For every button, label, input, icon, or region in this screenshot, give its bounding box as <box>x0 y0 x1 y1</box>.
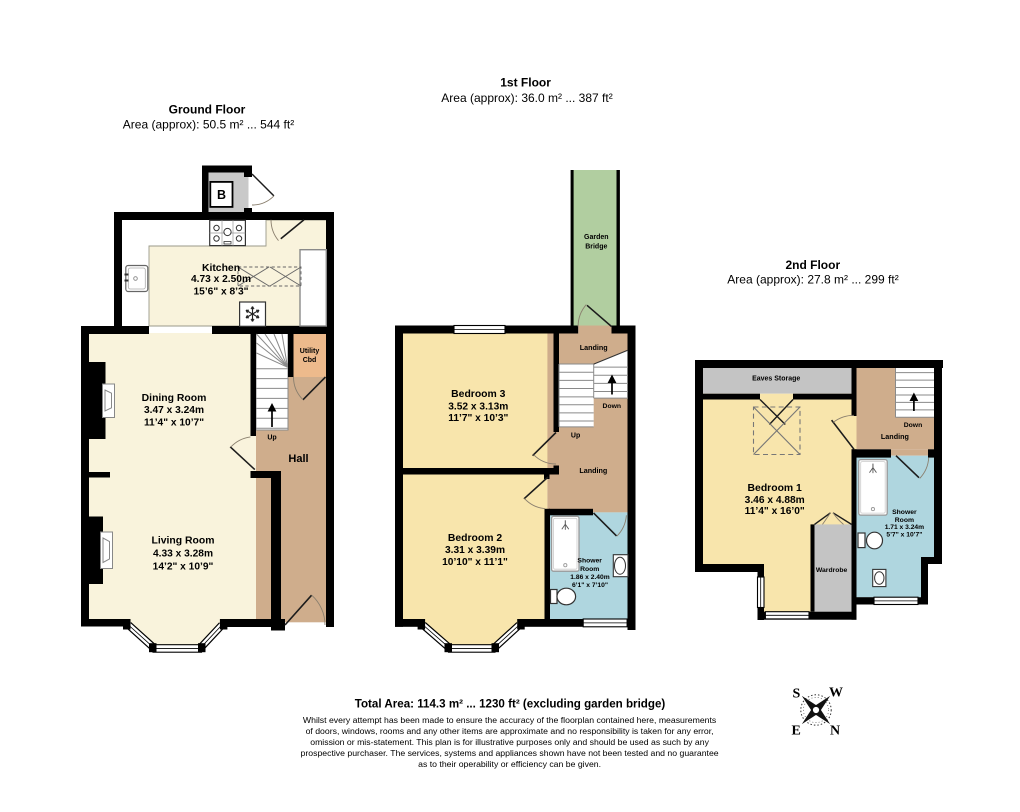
svg-text:Ground Floor: Ground Floor <box>169 103 246 117</box>
svg-text:6’1" x 7’10": 6’1" x 7’10" <box>572 582 608 589</box>
svg-text:15’6" x 8’3": 15’6" x 8’3" <box>194 287 249 298</box>
svg-text:2nd Floor: 2nd Floor <box>785 258 840 272</box>
svg-text:Garden: Garden <box>584 234 609 241</box>
svg-text:Down: Down <box>904 422 923 429</box>
svg-text:1.86 x 2.40m: 1.86 x 2.40m <box>570 574 609 581</box>
svg-text:Cbd: Cbd <box>303 357 317 364</box>
svg-text:Bedroom 3: Bedroom 3 <box>451 389 505 400</box>
svg-text:of doors, windows, rooms and a: of doors, windows, rooms and any other i… <box>306 726 714 736</box>
svg-text:Area (approx): 36.0 m² ... 387: Area (approx): 36.0 m² ... 387 ft² <box>441 91 612 105</box>
svg-text:4.73 x 2.50m: 4.73 x 2.50m <box>191 274 251 285</box>
svg-text:Room: Room <box>895 517 914 524</box>
svg-text:Hall: Hall <box>288 453 308 465</box>
svg-text:Up: Up <box>267 434 276 441</box>
svg-text:Kitchen: Kitchen <box>202 263 240 274</box>
svg-text:S: S <box>793 686 801 701</box>
svg-text:1st Floor: 1st Floor <box>500 76 551 90</box>
svg-text:Bridge: Bridge <box>585 244 607 251</box>
svg-text:14’2" x 10’9": 14’2" x 10’9" <box>153 562 214 573</box>
svg-text:W: W <box>829 686 843 701</box>
svg-text:Wardrobe: Wardrobe <box>816 567 848 574</box>
svg-text:4.33 x 3.28m: 4.33 x 3.28m <box>153 549 213 560</box>
svg-text:prospective purchaser. The ser: prospective purchaser. The services, sys… <box>301 748 719 758</box>
svg-text:3.46 x 4.88m: 3.46 x 4.88m <box>745 495 805 506</box>
svg-text:Total Area: 114.3 m² ... 1230: Total Area: 114.3 m² ... 1230 ft² (exclu… <box>355 698 666 711</box>
svg-text:3.52 x 3.13m: 3.52 x 3.13m <box>448 402 508 413</box>
svg-text:11’7" x 10’3": 11’7" x 10’3" <box>448 413 508 424</box>
svg-text:5’7" x 10’7": 5’7" x 10’7" <box>886 531 922 538</box>
svg-text:1.71 x 3.24m: 1.71 x 3.24m <box>885 524 924 531</box>
svg-text:B: B <box>217 188 226 202</box>
svg-text:Bedroom 1: Bedroom 1 <box>748 483 802 494</box>
svg-text:10’10" x 11’1": 10’10" x 11’1" <box>442 557 508 568</box>
svg-text:as to their operability or eff: as to their operability or efficiency ca… <box>418 759 601 769</box>
svg-text:Utility: Utility <box>300 348 320 355</box>
svg-text:Bedroom 2: Bedroom 2 <box>448 533 502 544</box>
svg-text:3.31 x 3.39m: 3.31 x 3.39m <box>445 545 505 556</box>
svg-text:Area (approx): 50.5 m² ... 544: Area (approx): 50.5 m² ... 544 ft² <box>123 118 294 132</box>
svg-text:Shower: Shower <box>892 509 917 516</box>
svg-text:E: E <box>792 724 801 739</box>
svg-text:Shower: Shower <box>577 557 602 564</box>
svg-text:3.47 x 3.24m: 3.47 x 3.24m <box>144 405 204 416</box>
svg-text:11’4" x 16’0": 11’4" x 16’0" <box>745 506 805 517</box>
svg-text:Up: Up <box>571 432 580 439</box>
svg-text:11’4" x 10’7": 11’4" x 10’7" <box>144 418 204 429</box>
svg-text:Down: Down <box>603 403 622 410</box>
svg-text:Living Room: Living Room <box>152 536 215 547</box>
svg-text:Whilst every attempt has been: Whilst every attempt has been made to en… <box>303 715 717 725</box>
svg-text:Area (approx): 27.8 m² ... 299: Area (approx): 27.8 m² ... 299 ft² <box>727 273 898 287</box>
svg-text:Landing: Landing <box>881 432 909 441</box>
svg-text:omission or mis-statement. Thi: omission or mis-statement. This plan is … <box>310 737 709 747</box>
svg-text:N: N <box>830 724 840 739</box>
svg-text:Room: Room <box>580 566 599 573</box>
svg-text:Landing: Landing <box>579 466 607 475</box>
svg-text:Eaves Storage: Eaves Storage <box>752 375 800 382</box>
svg-text:Landing: Landing <box>580 343 608 352</box>
svg-text:Dining Room: Dining Room <box>142 393 207 404</box>
